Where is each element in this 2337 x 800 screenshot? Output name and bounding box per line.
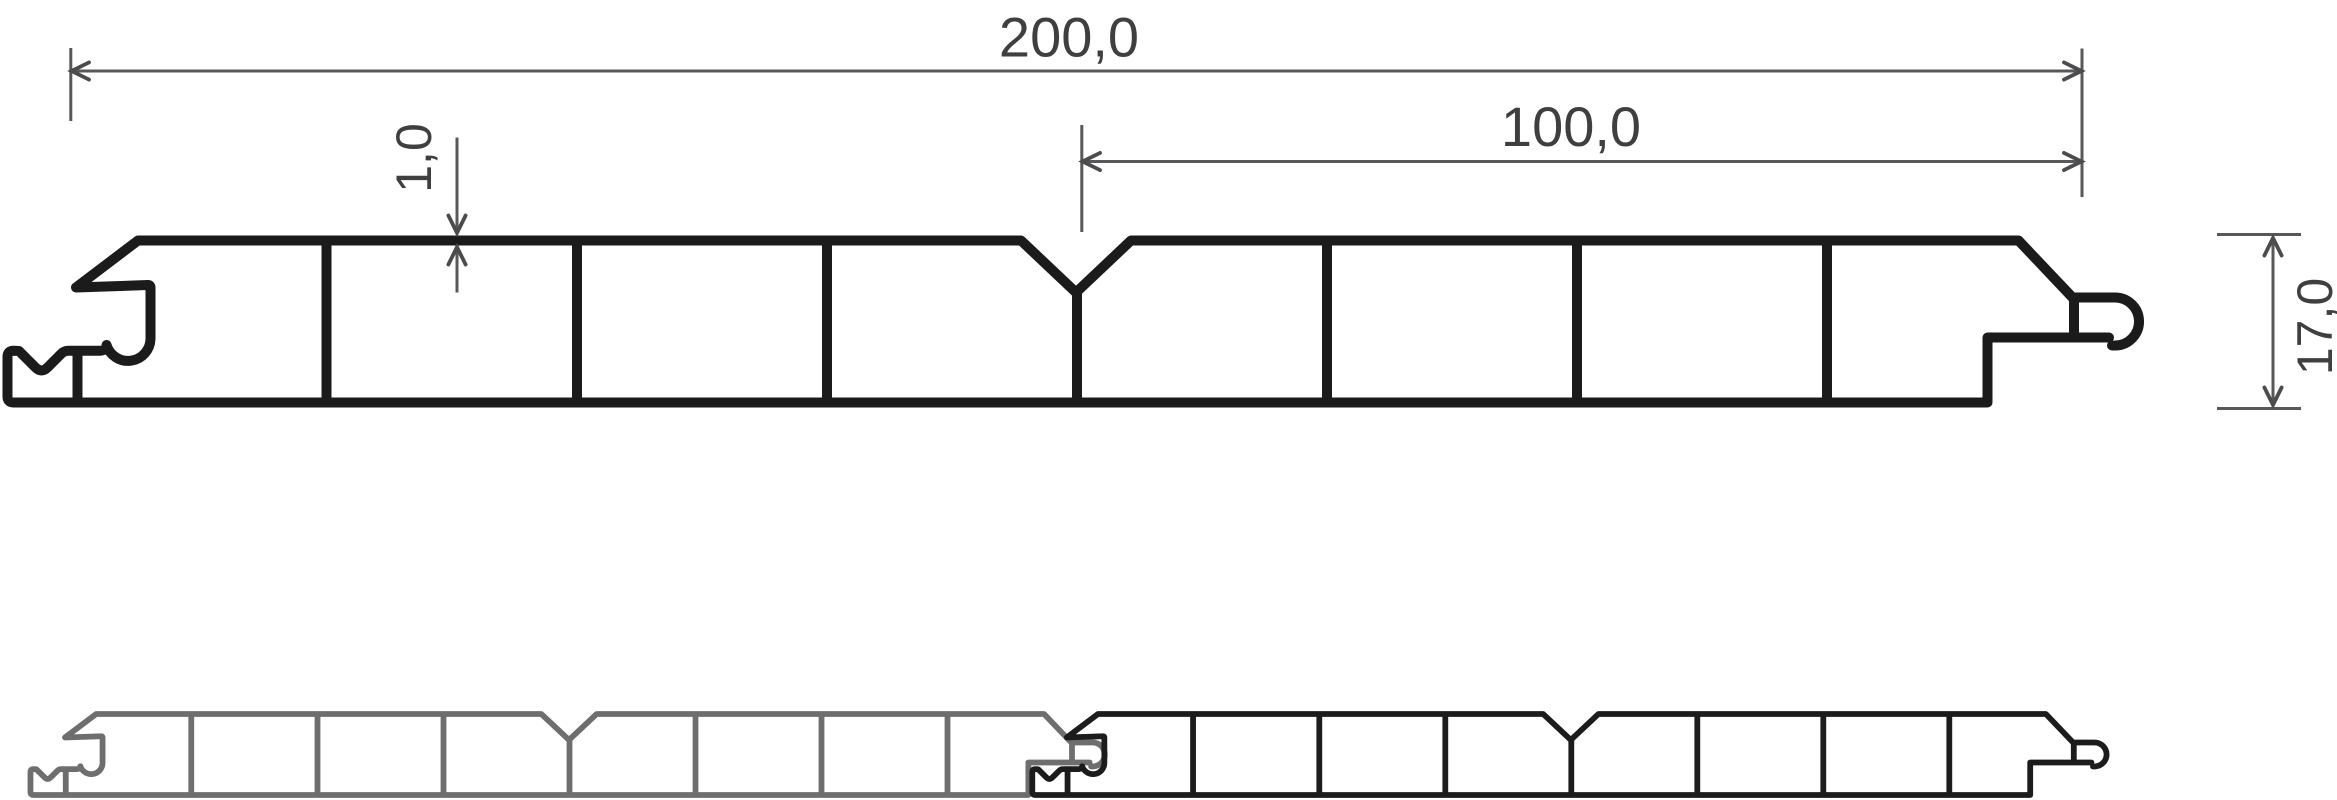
- svg-text:100,0: 100,0: [1501, 95, 1641, 158]
- svg-text:1,0: 1,0: [386, 123, 442, 193]
- svg-text:17,0: 17,0: [2287, 278, 2337, 375]
- svg-text:200,0: 200,0: [999, 6, 1139, 69]
